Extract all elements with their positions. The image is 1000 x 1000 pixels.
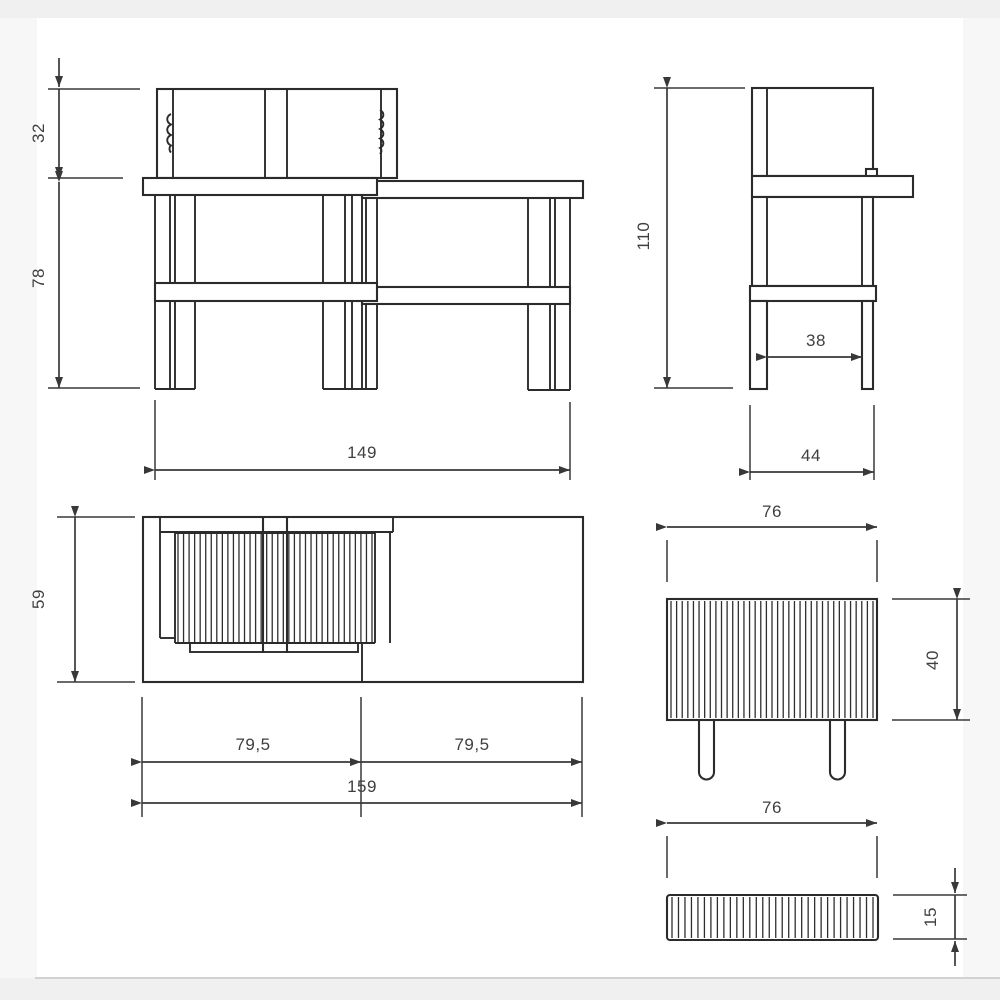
- board-outline: [667, 895, 878, 940]
- dim-label-board-thickness: 15: [921, 907, 940, 927]
- dim-panel-width: 76: [667, 502, 877, 582]
- right-margin-band: [963, 0, 1000, 1000]
- side-stretcher: [750, 286, 876, 301]
- left-margin-band: [0, 0, 37, 1000]
- dim-label-overall-length: 159: [347, 777, 377, 796]
- dim-label-seat-depth: 59: [29, 589, 48, 609]
- slat-board-detail-view: 76 15: [667, 798, 967, 966]
- left-stretcher: [155, 283, 377, 301]
- dim-front-heights: 32 78: [29, 58, 140, 388]
- right-seat-board: [362, 181, 583, 198]
- dim-label-panel-width: 76: [762, 502, 782, 521]
- side-seat-plank: [752, 176, 913, 197]
- left-seat-board: [143, 178, 377, 195]
- panel-left-peg: [699, 720, 714, 780]
- dim-plan-lengths: 79,5 79,5 159: [142, 697, 582, 817]
- dim-plan-depth: 59: [29, 517, 135, 682]
- bottom-border-band: [0, 978, 1000, 1000]
- backrest-panel-detail-view: 76 40: [667, 502, 970, 780]
- side-backrest: [752, 88, 873, 176]
- front-elevation-view: 149 32 78: [29, 58, 583, 480]
- side-elevation-view: 110 38 44: [634, 88, 913, 480]
- dim-label-front-width: 149: [347, 443, 377, 462]
- dim-side-leg-clearance: 38: [767, 331, 862, 357]
- dim-board-thickness: 15: [893, 868, 967, 966]
- technical-drawing-page: 149 32 78 110: [0, 0, 1000, 1000]
- backrest-outline: [157, 89, 397, 178]
- side-frame-box: [752, 197, 873, 286]
- dim-label-board-width: 76: [762, 798, 782, 817]
- dim-front-width: 149: [155, 400, 570, 480]
- dim-label-left-half: 79,5: [235, 735, 270, 754]
- top-border-band: [0, 0, 1000, 18]
- plan-seat-outline: [143, 517, 583, 682]
- dim-panel-height: 40: [892, 599, 970, 720]
- dim-side-depth: 44: [750, 405, 874, 480]
- side-front-leg: [862, 301, 873, 389]
- dim-label-backrest-height: 32: [29, 123, 48, 143]
- dim-side-height: 110: [634, 88, 745, 388]
- technical-drawing-canvas: 149 32 78 110: [0, 0, 1000, 1000]
- plan-view: 59 79,5 79,5 159: [29, 517, 583, 817]
- dim-label-overall-height: 110: [634, 222, 653, 251]
- dim-label-leg-clearance: 38: [806, 331, 826, 350]
- dim-label-right-half: 79,5: [454, 735, 489, 754]
- dim-label-frame-height: 78: [29, 268, 48, 288]
- panel-right-peg: [830, 720, 845, 780]
- side-back-leg: [750, 301, 767, 389]
- right-stretcher: [362, 287, 570, 304]
- dim-board-width: 76: [667, 798, 877, 878]
- dim-label-panel-height: 40: [923, 650, 942, 670]
- dim-label-frame-depth: 44: [801, 446, 821, 465]
